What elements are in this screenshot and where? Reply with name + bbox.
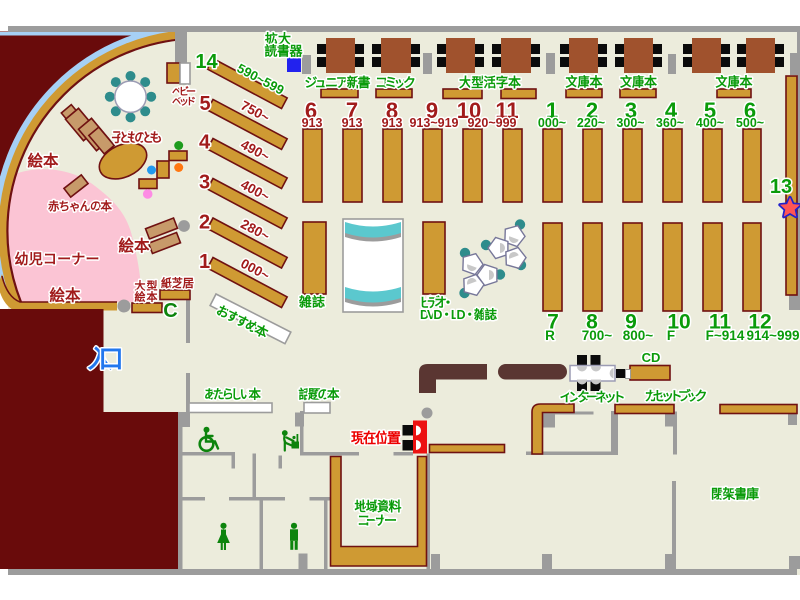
svg-text:4: 4 (199, 132, 211, 154)
svg-text:地域資料: 地域資料 (355, 499, 402, 514)
svg-text:F~914: F~914 (706, 328, 745, 343)
svg-text:920~999: 920~999 (467, 116, 516, 130)
svg-text:CD: CD (642, 350, 661, 365)
svg-text:絵本: 絵本 (119, 236, 150, 255)
svg-text:ジュニア新書: ジュニア新書 (305, 75, 371, 90)
svg-text:話題の本: 話題の本 (299, 387, 340, 402)
svg-text:913: 913 (302, 116, 323, 130)
svg-text:913: 913 (382, 116, 403, 130)
svg-text:絵本: 絵本 (50, 286, 81, 305)
svg-text:コーナー: コーナー (357, 513, 397, 528)
svg-text:C: C (163, 300, 177, 322)
svg-text:文庫本: 文庫本 (566, 75, 603, 90)
svg-text:幼児コーナー: 幼児コーナー (15, 251, 100, 267)
svg-text:400~: 400~ (696, 116, 724, 130)
svg-text:14: 14 (195, 51, 218, 73)
svg-text:1: 1 (199, 251, 210, 273)
svg-text:914~999: 914~999 (747, 328, 800, 343)
svg-text:300~: 300~ (616, 116, 644, 130)
svg-text:F: F (667, 328, 675, 343)
svg-text:000~: 000~ (538, 116, 566, 130)
svg-text:2: 2 (199, 212, 210, 234)
svg-text:220~: 220~ (577, 116, 605, 130)
svg-text:ベッド: ベッド (172, 96, 196, 108)
svg-text:700~: 700~ (582, 328, 613, 343)
svg-text:あたらしい本: あたらしい本 (204, 387, 261, 402)
svg-text:大型活字本: 大型活字本 (459, 75, 521, 90)
svg-text:913~919: 913~919 (409, 116, 458, 130)
svg-text:紙芝居: 紙芝居 (161, 276, 195, 290)
svg-text:R: R (545, 328, 555, 343)
svg-text:コミック: コミック (375, 75, 416, 90)
svg-text:800~: 800~ (623, 328, 654, 343)
svg-text:赤ちゃんの本: 赤ちゃんの本 (48, 199, 113, 213)
svg-text:大型: 大型 (135, 279, 158, 293)
svg-text:文庫本: 文庫本 (620, 75, 657, 90)
svg-text:500~: 500~ (736, 116, 764, 130)
svg-text:現在位置: 現在位置 (351, 430, 401, 446)
svg-text:閉架書庫: 閉架書庫 (711, 487, 759, 502)
svg-text:子どものとも: 子どものとも (112, 130, 163, 145)
svg-text:360~: 360~ (656, 116, 684, 130)
svg-text:雑誌: 雑誌 (298, 295, 325, 310)
svg-text:入口: 入口 (88, 346, 124, 374)
svg-text:913: 913 (342, 116, 363, 130)
svg-text:絵本: 絵本 (135, 290, 158, 304)
svg-text:読書器: 読書器 (265, 44, 304, 59)
svg-text:文庫本: 文庫本 (716, 75, 753, 90)
svg-text:カセットブック: カセットブック (645, 389, 708, 404)
svg-text:DVD・LD・雑誌: DVD・LD・雑誌 (420, 307, 497, 322)
svg-text:インターネット: インターネット (560, 390, 626, 405)
svg-text:絵本: 絵本 (28, 151, 59, 170)
svg-text:13: 13 (770, 176, 792, 198)
svg-text:3: 3 (199, 172, 210, 194)
svg-text:5: 5 (199, 93, 210, 115)
